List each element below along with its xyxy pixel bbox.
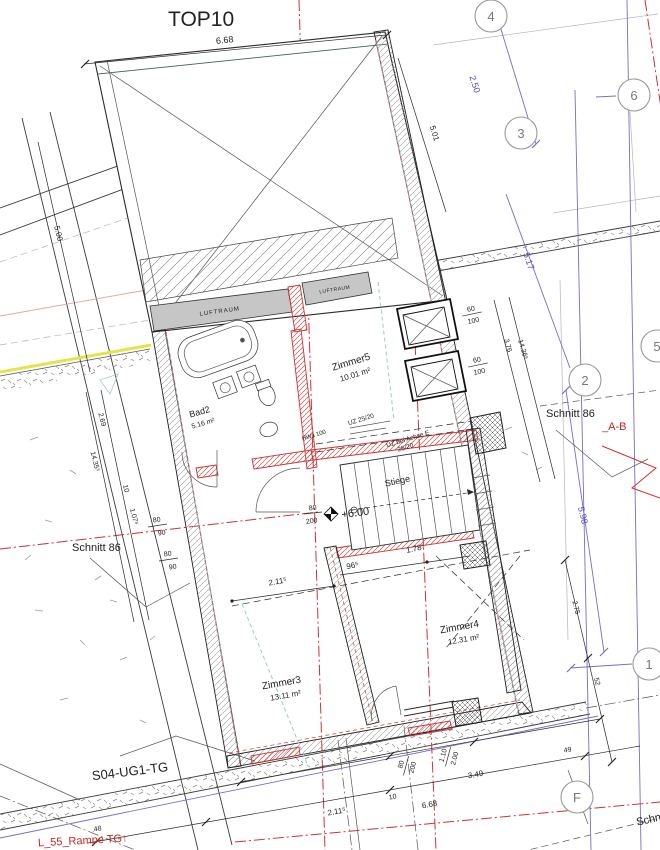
dim-bottom-48: .48 [91, 825, 102, 834]
niche [460, 541, 490, 569]
dim-z3-211: 2.11⁵ [268, 576, 288, 588]
dim-bottom-349: 3.49 [467, 769, 484, 781]
dim-right-52: 52 [592, 677, 601, 686]
axis-bubble-1: 1 [633, 648, 660, 680]
dim-door-a-w: 80 [152, 516, 161, 524]
schnitt-bottom-label: Schnitt 86 [635, 806, 660, 829]
uz-left-label: UZ 25/20 [347, 413, 375, 428]
axis-bubble-3: 3 [505, 117, 537, 149]
dim-win-a-h: 100 [467, 317, 480, 326]
floorplan-sheet: LUFTRAUM LUFTRAUM [0, 0, 660, 850]
axis-bubble-2: 2 [569, 364, 601, 396]
toilet [254, 379, 278, 408]
s04-label: S04-UG1-TG [91, 759, 169, 783]
dim-right-376: 3.76 [502, 338, 513, 353]
dim-bottom-door-h: 200 [408, 761, 418, 774]
landing-door-arc [256, 468, 300, 512]
svg-text:F: F [573, 790, 581, 805]
dim-bottom-win-w: 1.10 [439, 748, 449, 763]
dim-win-b-w: 60 [473, 356, 482, 364]
dim-bottom-width: 6.68 [421, 799, 438, 811]
svg-text:6: 6 [630, 88, 637, 103]
dim-right-total: 14.36⁵ [516, 339, 528, 361]
schnitt-right-label: Schnitt 86 [546, 408, 595, 420]
axis-bubbles: 4 3 6 2 5 1 F [475, 0, 660, 813]
room-area-bad2: 5.16 m² [191, 417, 216, 430]
room-area-zimmer4: 12.31 m² [447, 632, 480, 646]
dim-bottom-win-h: 2.00 [450, 751, 460, 766]
title-top10: TOP10 [168, 8, 234, 31]
chimney [452, 698, 482, 726]
schnitt-left-label: Schnitt 86 [72, 542, 121, 554]
shaft [470, 412, 506, 454]
dim-bottom-door-w: 80 [397, 760, 406, 769]
bidet [258, 420, 280, 439]
floorplan-drawing: LUFTRAUM LUFTRAUM [0, 0, 660, 850]
dim-door-a-h: 90 [157, 529, 166, 537]
dim-win-a-w: 60 [467, 305, 476, 313]
dim-slope-right: 5.17 [521, 251, 536, 271]
dim-door-b-h: 90 [168, 563, 177, 571]
dim-door-stair-w: 80 [308, 504, 317, 512]
axis-bubble-4: 4 [475, 0, 507, 32]
dim-stair-96: 96⁵ [346, 560, 360, 571]
dim-right-275: 2.75 [570, 600, 580, 615]
axis-bubble-6: 6 [618, 79, 650, 111]
dim-door-b-w: 80 [163, 550, 172, 558]
dim-door-stair-h: 200 [306, 517, 319, 526]
dim-left-107: 1.07⁵ [128, 508, 139, 526]
axis-bubble-5: 5 [641, 330, 660, 362]
svg-text:1: 1 [645, 657, 652, 672]
dim-left-upper: 5.00 [52, 225, 65, 243]
axis-bubble-F: F [561, 781, 593, 813]
dim-axis-34: 2.50 [468, 74, 483, 94]
dim-top-width: 6.68 [215, 34, 233, 46]
dim-left-total: 14.35⁵ [89, 451, 101, 473]
room-area-zimmer3: 13.11 m² [270, 688, 302, 702]
svg-text:4: 4 [487, 9, 494, 24]
dim-wall-right-top: 5.01 [428, 125, 441, 143]
dim-bottom-211: 2.11⁵ [327, 806, 347, 818]
dim-bottom-49: 49 [563, 746, 572, 754]
section-ab-label: _A-B [601, 421, 626, 433]
room-label-bad2: Bad2 [188, 404, 211, 419]
svg-text:5: 5 [653, 339, 660, 354]
dim-win-b-h: 100 [473, 368, 486, 377]
dim-axis-right: 5.98 [576, 506, 590, 525]
bathroom-fixtures [173, 316, 279, 439]
dim-left-269: 2.69 [96, 412, 106, 427]
svg-text:2: 2 [581, 373, 588, 388]
svg-text:3: 3 [517, 126, 524, 141]
rampe-label: L_55_Rampe TG↑ [38, 833, 128, 850]
dim-bottom-10: 10 [388, 793, 397, 801]
